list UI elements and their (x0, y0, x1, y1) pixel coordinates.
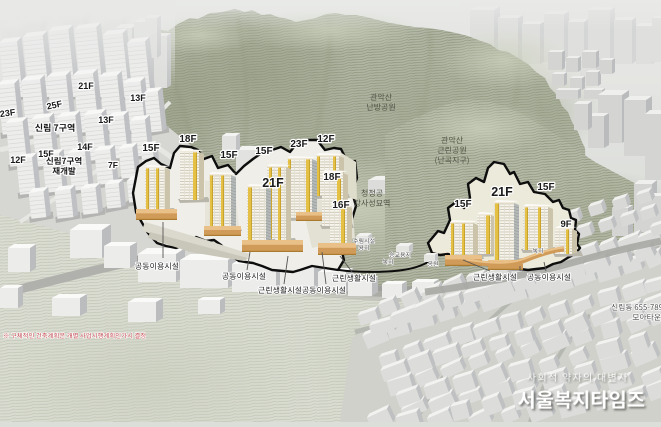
svg-text:15F: 15F (220, 150, 237, 161)
svg-text:14F: 14F (77, 142, 93, 152)
svg-text:23F: 23F (290, 139, 307, 150)
svg-text:18F: 18F (323, 172, 340, 183)
svg-text:15F: 15F (537, 182, 554, 193)
svg-text:12F: 12F (317, 134, 334, 145)
svg-text:7F: 7F (108, 160, 118, 170)
svg-text:15F: 15F (454, 199, 471, 210)
svg-text:21F: 21F (262, 176, 284, 190)
svg-text:9F: 9F (560, 219, 571, 230)
svg-text:13F: 13F (130, 93, 146, 103)
svg-text:13F: 13F (98, 115, 114, 125)
svg-text:12F: 12F (10, 155, 26, 165)
svg-text:16F: 16F (332, 200, 349, 211)
svg-text:21F: 21F (491, 185, 513, 199)
svg-text:15F: 15F (255, 146, 272, 157)
svg-text:18F: 18F (179, 134, 196, 145)
svg-text:21F: 21F (78, 81, 94, 91)
svg-text:15F: 15F (142, 143, 159, 154)
